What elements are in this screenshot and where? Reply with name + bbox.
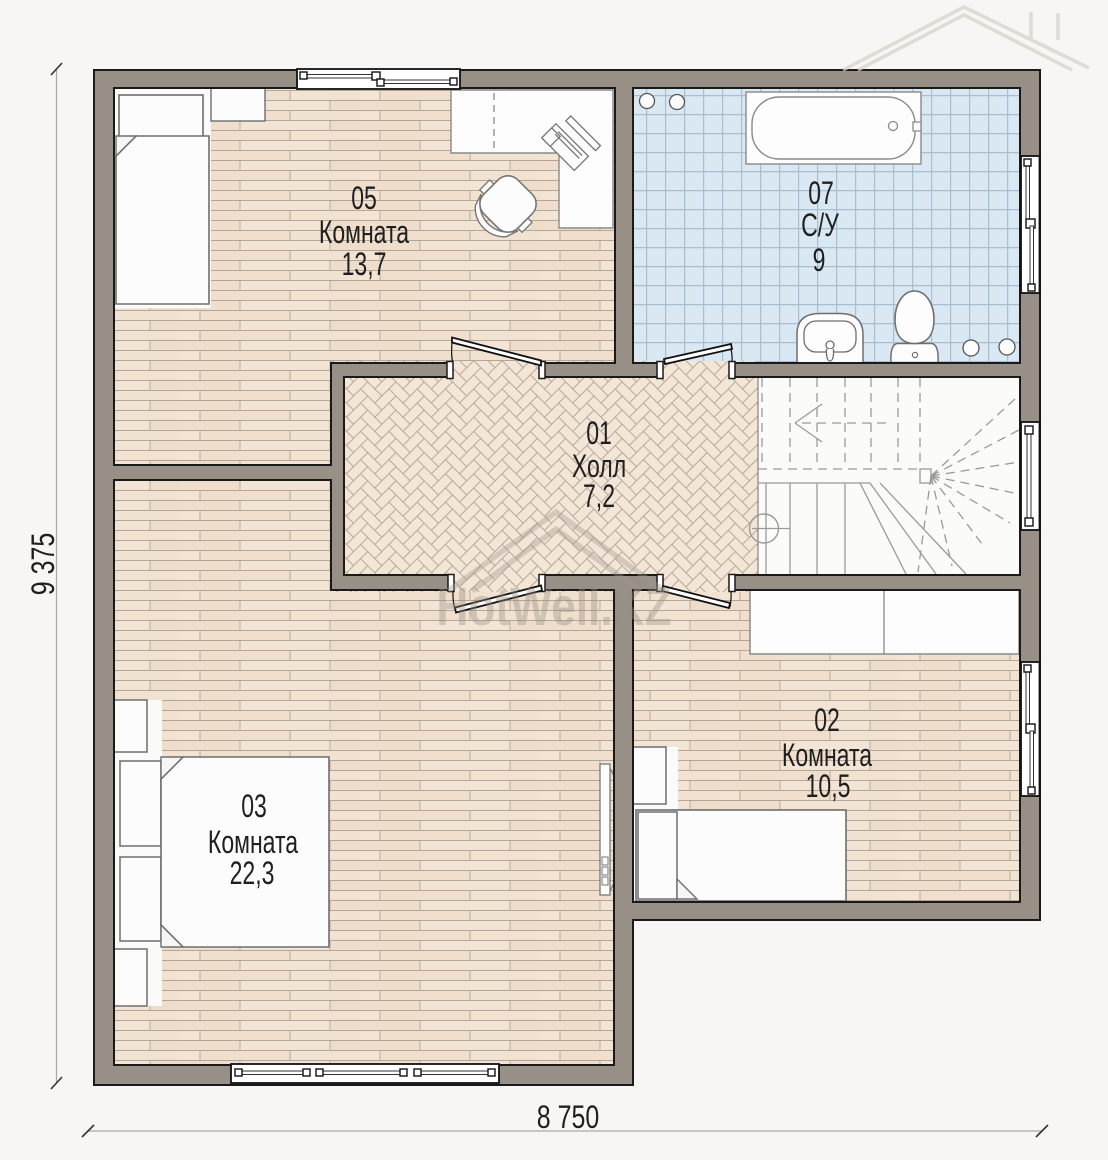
svg-text:03: 03 [241, 788, 267, 824]
svg-text:22,3: 22,3 [230, 855, 275, 891]
svg-text:8 750: 8 750 [537, 1100, 599, 1136]
svg-text:13,7: 13,7 [342, 246, 387, 282]
svg-text:10,5: 10,5 [806, 768, 851, 804]
svg-text:02: 02 [814, 702, 840, 738]
svg-text:05: 05 [351, 180, 377, 216]
svg-text:7,2: 7,2 [583, 478, 615, 514]
svg-text:Комната: Комната [319, 214, 410, 250]
svg-text:01: 01 [586, 415, 612, 451]
svg-text:HotWell.KZ: HotWell.KZ [436, 577, 671, 637]
svg-text:07: 07 [808, 175, 834, 211]
svg-text:9: 9 [813, 242, 826, 278]
svg-text:9 375: 9 375 [26, 533, 62, 595]
svg-text:С/У: С/У [801, 207, 839, 243]
